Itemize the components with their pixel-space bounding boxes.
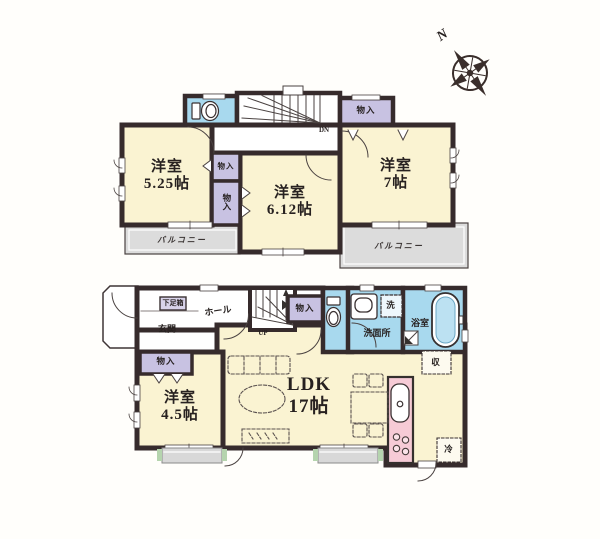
bathroom-label: 浴室	[411, 318, 429, 328]
vanity-icon	[351, 294, 377, 319]
bathtub-icon	[432, 293, 463, 347]
closet-label-2f-lower: 物入	[221, 194, 231, 211]
room-label-bedroom-525: 洋室5.25帖	[144, 159, 190, 194]
entrance-label: 玄関	[158, 324, 176, 334]
balcony-label-left: バルコニー	[157, 235, 207, 244]
balcony-label-right: バルコニー	[374, 241, 424, 250]
staircase-2f	[237, 93, 340, 125]
compass-rose-icon	[434, 36, 505, 109]
kitchen-counter	[388, 377, 413, 463]
floorplan-drawing	[0, 0, 600, 539]
floorplan-page: 洋室5.25帖 洋室6.12帖 洋室7帖 物入 物入 物入 バルコニー バルコニ…	[0, 0, 600, 539]
refrigerator-label: 冷	[444, 445, 454, 455]
stairs-dn-label: DN	[319, 126, 329, 134]
room-label-bedroom-612: 洋室6.12帖	[267, 185, 313, 220]
washroom-label: 洗面所	[363, 328, 390, 338]
closet-label-2f-top: 物入	[356, 106, 375, 116]
room-label-ldk: LDK17帖	[287, 374, 331, 418]
closet-bedroom-label: 物入	[156, 357, 175, 367]
storage-label: 収	[431, 358, 441, 368]
back-door	[418, 461, 436, 481]
floor-1f-geometry	[103, 285, 468, 481]
toilet-icon-1f	[327, 297, 341, 327]
toilet-icon-2f	[192, 102, 219, 121]
stairs-up-label: UP	[258, 329, 267, 337]
room-label-bedroom-7: 洋室7帖	[380, 158, 412, 193]
room-label-bedroom-45: 洋室4.5帖	[161, 390, 199, 425]
porch	[103, 286, 138, 348]
closet-label-2f-upper: 物入	[218, 163, 235, 172]
bath-door	[404, 331, 418, 345]
closet-hall-label: 物入	[295, 304, 314, 314]
washer-label: 洗	[386, 301, 396, 311]
shoe-box-label: 下足箱	[163, 299, 184, 307]
